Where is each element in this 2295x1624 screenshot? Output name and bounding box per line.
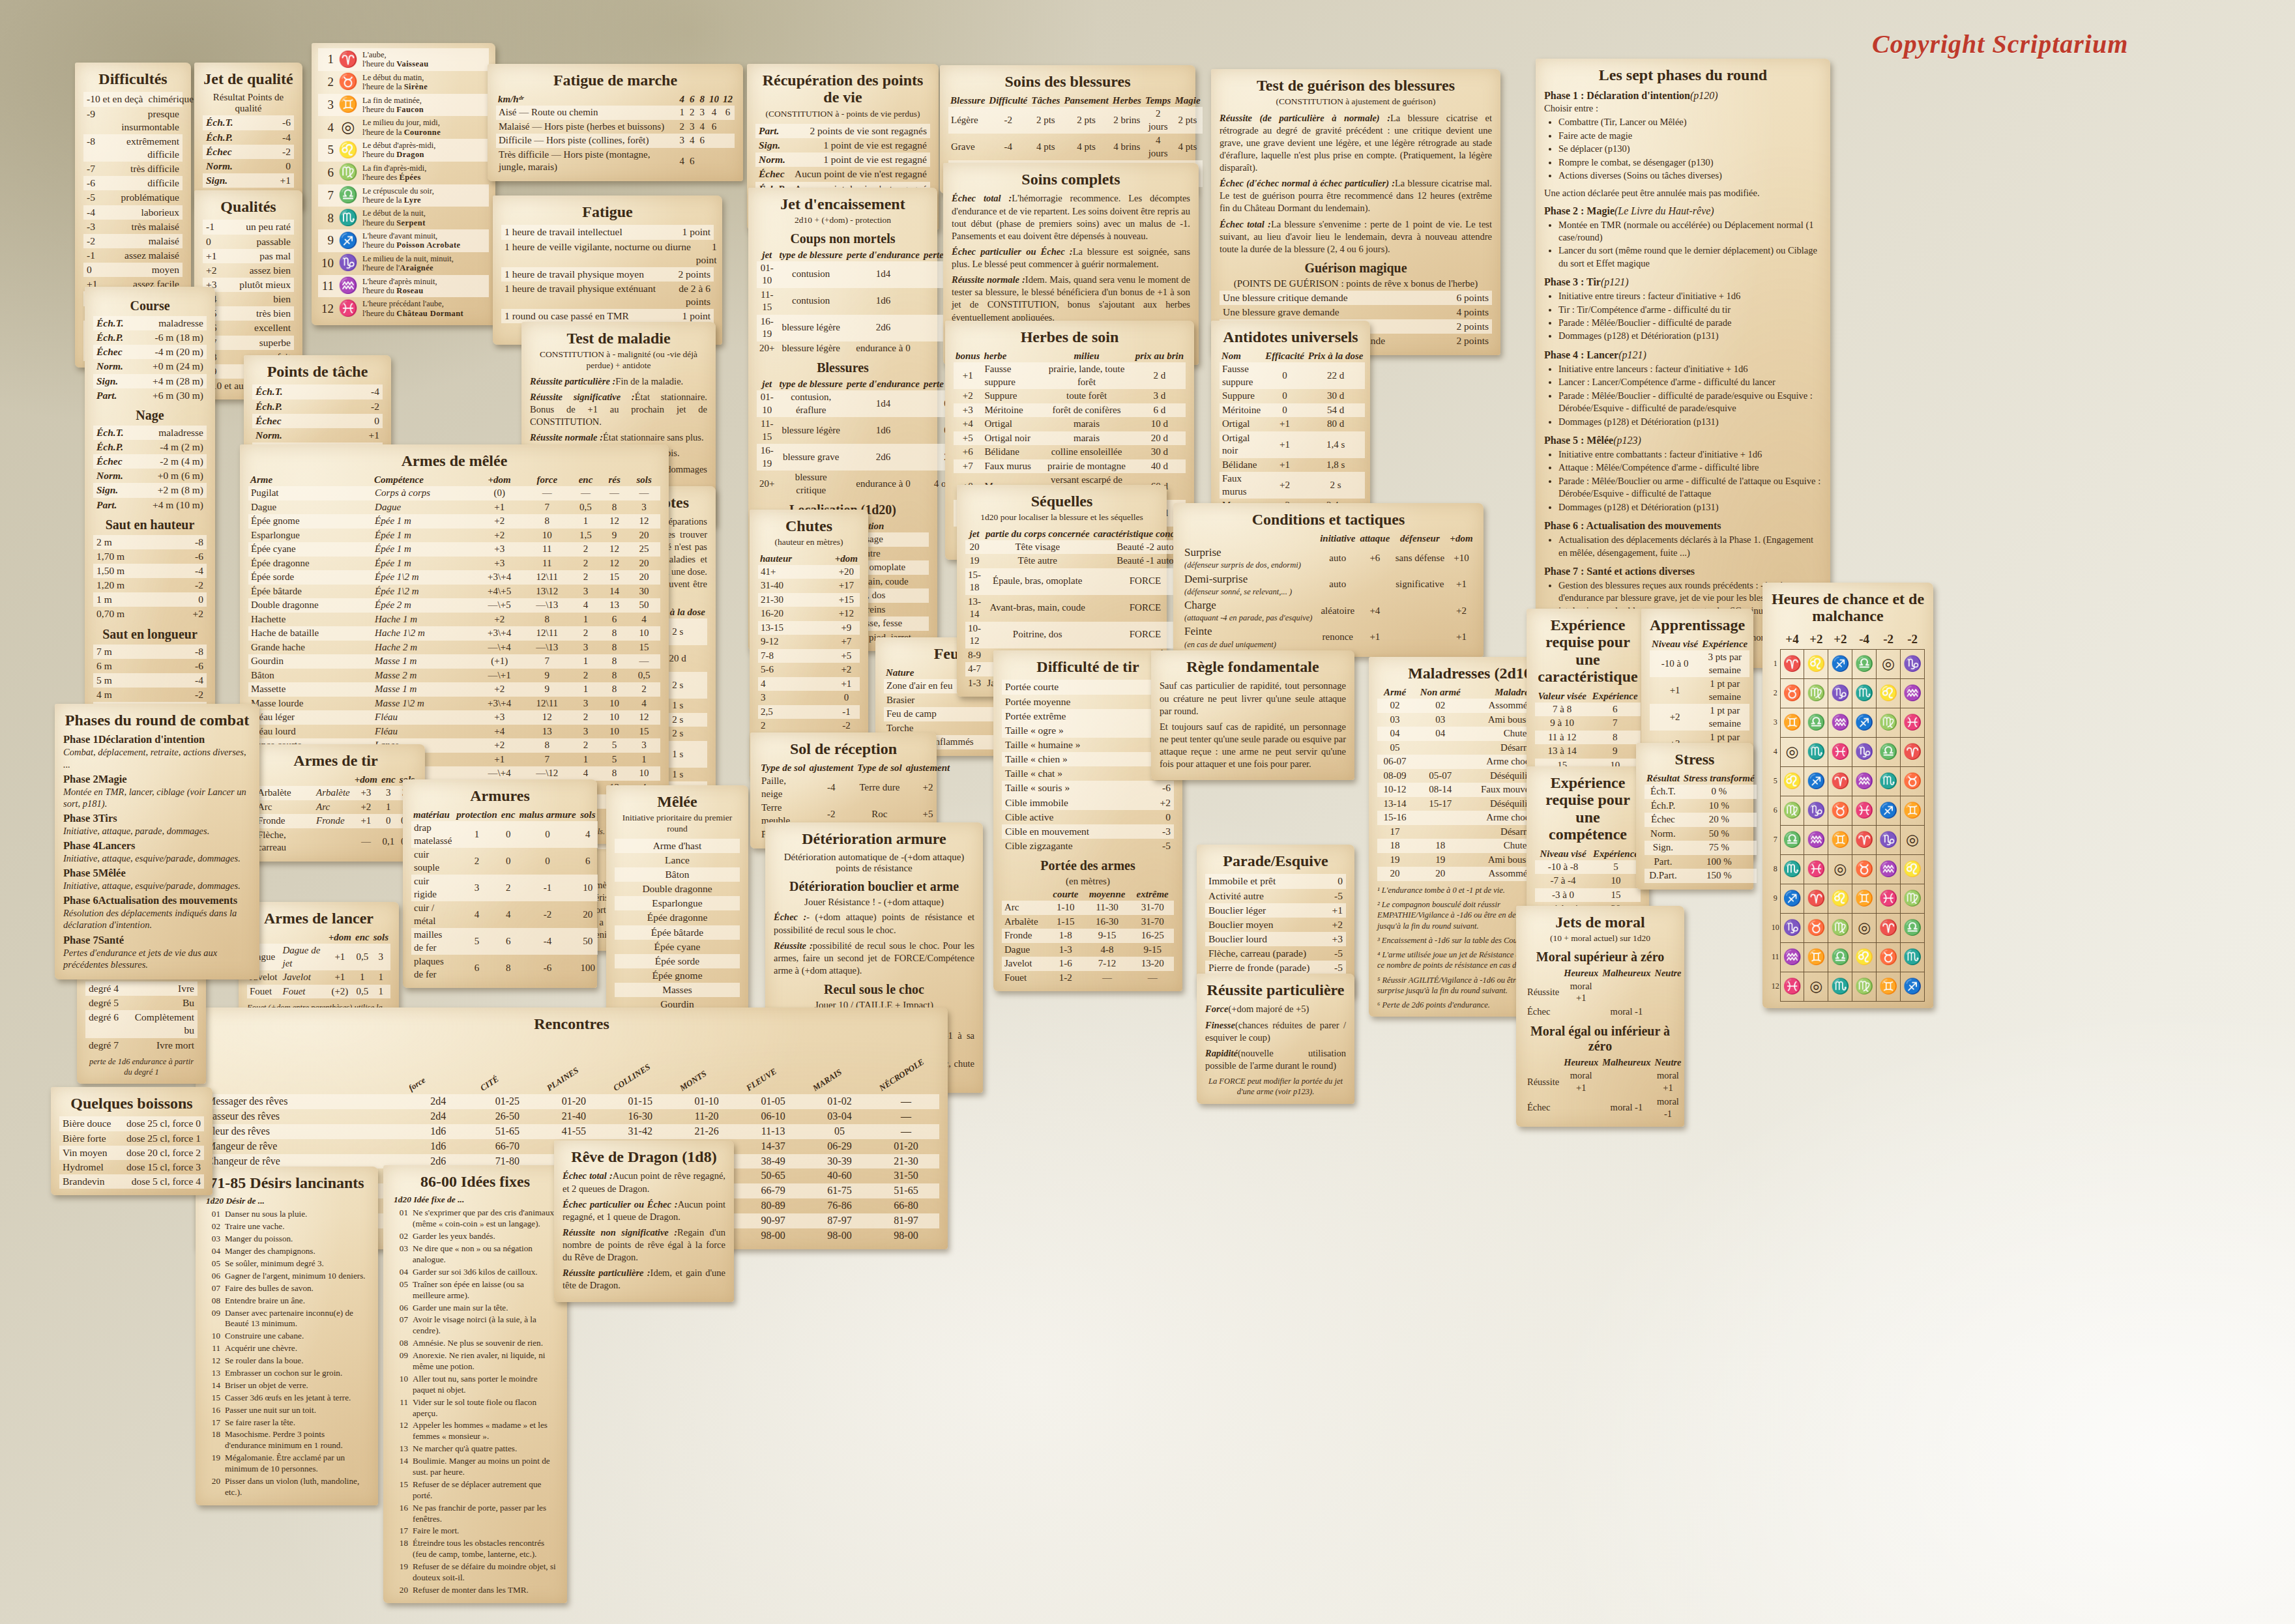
kv-label: 7 m	[96, 645, 112, 658]
table-cell: Épaule, bras, omoplate	[984, 568, 1092, 595]
table-row: 2,5-1	[758, 705, 860, 719]
bullet-item: Combattre (Tir, Lancer ou Mêlée)	[1558, 116, 1822, 128]
kv-value: dose 25 cl, force 0	[126, 1117, 201, 1130]
table-header-row: +domencsols	[255, 774, 417, 786]
hour-row: 1♈L'aube,l'heure du Vaisseau	[318, 48, 489, 71]
table-cell: Fronde	[314, 814, 353, 828]
list-item: Arme d'hast	[615, 839, 740, 853]
item-text: Pisser dans un violon (luth, mandoline, …	[225, 1476, 368, 1498]
item-number: 11	[394, 1397, 408, 1419]
kv-row: Bière fortedose 25 cl, force 1	[59, 1131, 204, 1146]
table-cell: 30 d	[1133, 445, 1186, 459]
section-heading: Moral égal ou inférieur à zéro	[1525, 1024, 1676, 1054]
table-row: 01-10contusion1d40	[757, 261, 971, 288]
kv-value: +4 m (10 m)	[153, 499, 203, 512]
hour-rune-couronne-icon: ◎	[1877, 649, 1901, 678]
table-cell: -7 à -4	[1535, 874, 1591, 888]
combat-phase: Phase 6Actualisation des mouvementsRésol…	[63, 894, 251, 931]
table-cell: 0	[1263, 362, 1306, 389]
kv-value: très malaisé	[131, 220, 179, 233]
table-cell: 10	[628, 766, 660, 781]
column-header: Niveau visé	[1650, 638, 1700, 650]
table-cell: 7	[524, 753, 571, 767]
kv-row: +2assez bien	[203, 263, 294, 278]
column-header: Efficacité	[1263, 350, 1306, 362]
table-cell: Hache de bataille	[248, 626, 372, 641]
item-text: Ne s'exprimer que par des cris d'animaux…	[413, 1208, 557, 1230]
center-line: Détérioration automatique de -(+dom atta…	[774, 852, 974, 874]
table-cell: 1	[677, 106, 688, 120]
table-cell: 08-09	[1377, 769, 1412, 783]
table-cell: 4-8	[1083, 943, 1132, 957]
hour-prefix: l'heure de l'	[362, 263, 400, 272]
kv-row: Sign.+2 m (8 m)	[93, 483, 207, 497]
panel-title: Armes de mêlée	[248, 452, 660, 469]
column-header: moyenne	[1083, 888, 1132, 901]
table-row: 9 à 107	[1535, 716, 1641, 731]
table-cell: Légère	[948, 107, 987, 134]
kv-label: 1 heure de travail intellectuel	[504, 225, 622, 239]
kv-value: -4	[371, 385, 379, 398]
table-row: 15-18Épaule, bras, omoplateFORCE	[965, 568, 1199, 595]
paragraph-lead: Échec particulier ou Échec :	[563, 1199, 678, 1210]
table-cell: Échec	[1525, 1005, 1562, 1019]
table-cell: 2	[628, 682, 660, 697]
panel-title: Expérience requise pour une caractéristi…	[1535, 616, 1641, 686]
list-item: 01Ne s'exprimer que par des cris d'anima…	[392, 1207, 559, 1230]
table-row: Grande hacheHache 2 m—\+4—\133815	[248, 641, 660, 655]
center-line: (POINTS DE GUÉRISON : points de rêve x b…	[1220, 278, 1492, 289]
table-row: 10-12Poitrine, dosFORCE	[965, 622, 1199, 648]
kv-row: Flèche, carreau (parade)-5	[1205, 946, 1346, 961]
table-cell: -4	[517, 928, 577, 955]
table-cell: 16-19	[757, 444, 777, 471]
column-header: perte d'endurance	[845, 378, 922, 390]
table-row: 13-15+9	[758, 621, 860, 635]
table-cell: 02	[1377, 699, 1412, 713]
kv-label: Échec	[206, 145, 232, 158]
column-header: ajustement	[904, 762, 952, 774]
hour-number: 9	[321, 233, 334, 248]
hour-number: 10	[321, 256, 334, 270]
panel-title: Rêve de Dragon (1d8)	[563, 1148, 725, 1165]
table-cell: Fléau	[372, 710, 475, 725]
rune-row: 2♉♍♑♏♌♒	[1771, 678, 1925, 708]
table-cell: blessure critique	[777, 471, 844, 497]
table-cell: —\+4	[475, 641, 524, 655]
table-cell: 2	[687, 106, 697, 120]
kv-row: Vin moyendose 20 cl, force 2	[59, 1146, 204, 1160]
table-cell: blessure légère	[777, 417, 844, 444]
panel-title: Soins des blessures	[948, 73, 1187, 90]
column-header: Arme	[248, 474, 372, 486]
table-cell: 4 jours	[1143, 134, 1173, 160]
kv-row: -8extrêmement difficile	[83, 134, 183, 162]
table-cell: 16-30	[1083, 915, 1132, 929]
panel-subtitle: (hauteur en mètres)	[758, 537, 860, 547]
table-cell: +1	[1263, 458, 1306, 472]
list-item: Lance	[615, 853, 740, 867]
table-cell: 3	[677, 134, 688, 148]
table-cell: (0)	[475, 486, 524, 500]
paragraph-lead: Réussite (de particulière à normale) :	[1220, 113, 1390, 123]
list-item: 06Garder une main sur la tête.	[392, 1302, 559, 1314]
table-cell: Difficile — Hors piste (collines, forêt)	[496, 134, 677, 148]
hour-prefix: l'heure de la	[362, 82, 404, 91]
panel-title: Phases du round de combat	[63, 712, 251, 729]
table-cell: 7	[524, 654, 571, 669]
item-number: 12	[206, 1356, 220, 1367]
bullet-item: Lancer du sort (même round que le dernie…	[1558, 244, 1822, 270]
table-cell: 0	[499, 821, 518, 848]
hour-rune-sirene-icon: ♉	[1804, 913, 1828, 942]
bullet-item: Rompre le combat, se désengager (p130)	[1558, 156, 1822, 169]
hour-rune-couronne-icon: ◎	[1901, 825, 1925, 854]
kv-label: Activité autre	[1208, 890, 1264, 903]
table-cell: Poitrine, dos	[984, 622, 1092, 648]
hour-rune-araignee-icon: ♑	[338, 254, 358, 272]
table-row: Double dragonneÉpée 2 m—\+5—\1341350	[248, 598, 660, 613]
table-row: ArcArc+2110	[255, 800, 417, 815]
table-cell: 9	[1589, 744, 1641, 759]
table-row: Charge(attaquant -4 en parade, pas d'esq…	[1182, 598, 1475, 624]
phase-pageref: (p120)	[1690, 90, 1718, 101]
column-header: Expérience	[1591, 848, 1641, 860]
bullet-item: Initiative entre tireurs : facteur d'ini…	[1558, 290, 1822, 302]
table-cell: 6	[697, 134, 708, 148]
phase-outro: Une action déclarée peut être annulée ma…	[1544, 188, 1822, 199]
kv-label: Éch.P.	[96, 441, 123, 454]
phase-number: Phase 6	[63, 894, 98, 906]
table-cell: Masse 1 m	[372, 654, 475, 669]
list-item: Épée sorde	[615, 954, 740, 968]
kv-value: superbe	[259, 336, 291, 349]
phase-title: Santé	[98, 934, 124, 946]
table-cell: 01-10	[673, 1094, 740, 1109]
table-cell: 01-10	[757, 390, 777, 417]
kv-row: Bière doucedose 25 cl, force 0	[59, 1116, 204, 1131]
hour-row: 4◎Le milieu du jour, midi,l'heure de la …	[318, 116, 489, 139]
data-table: +domencsolsArbalèteArbalète+3330ArcArc+2…	[255, 774, 417, 855]
table-cell: +7	[833, 635, 860, 649]
column-header: 8	[697, 93, 708, 106]
item-number: 15	[206, 1393, 220, 1404]
hour-desc: L'heure d'avant minuit,	[362, 231, 460, 240]
kv-label: Norm.	[96, 469, 123, 482]
item-number: 14	[394, 1456, 408, 1478]
phase-summary: Résolution des déplacements indiqués dan…	[63, 907, 251, 931]
kv-value: 1 point	[696, 240, 717, 267]
table-cell: 0,5	[353, 944, 372, 970]
kv-value: -2	[195, 579, 203, 592]
table-header-row: Type de solajustementType de solajusteme…	[759, 762, 952, 774]
column-header-terrain: CITÉ	[474, 1037, 540, 1094]
table-cell: 8	[524, 613, 571, 627]
phase-title: Déclaration d'intention	[98, 733, 205, 746]
paragraph-lead: Échec particulier ou Échec :	[952, 246, 1073, 257]
hour-name: Sirène	[404, 82, 428, 91]
list-item: 15Casser 3d6 œufs en les jetant à terre.	[204, 1392, 370, 1404]
table-cell	[1652, 979, 1683, 1006]
table-row: Messager des rêves2d401-2501-2001-1501-1…	[204, 1094, 939, 1109]
item-text: Se faire raser la tête.	[225, 1417, 295, 1428]
table-row: EsparlongueÉpée 1 m+2101,5920	[248, 529, 660, 543]
table-cell: mailles de fer	[411, 928, 454, 955]
table-cell: 8	[601, 766, 628, 781]
kv-value: 0	[1338, 875, 1343, 888]
rune-row-number: 2	[1771, 678, 1780, 708]
table-cell: 30	[628, 585, 660, 599]
table-cell: 20	[628, 529, 660, 543]
list-item: Épée cyane	[615, 940, 740, 954]
kv-row: +7superbe	[203, 336, 294, 350]
table-cell: 1-6	[1048, 957, 1083, 971]
phase-number: Phase 3	[63, 812, 98, 824]
item-text: Refuser de monter dans les TMR.	[413, 1585, 529, 1596]
panel-title: Test de guérison des blessures	[1220, 77, 1492, 94]
table-cell: 0 %	[1682, 785, 1757, 799]
item-number: 10	[394, 1374, 408, 1396]
table-cell: —	[873, 1094, 939, 1109]
paragraph: Finesse(chances réduites de parer / esqu…	[1205, 1019, 1346, 1044]
kv-row: 2 m-8	[93, 535, 207, 549]
kv-row: degré 4Ivre	[85, 981, 197, 996]
table-cell: 1-10	[1048, 901, 1083, 915]
hour-row: 11♒L'heure d'après minuit,l'heure du Ros…	[318, 275, 489, 298]
kv-label: Bière forte	[63, 1132, 106, 1145]
table-cell: 05	[1377, 741, 1412, 755]
rune-row: 5♌♐♈♒♏♉	[1771, 766, 1925, 796]
kv-value: très difficile	[130, 162, 179, 175]
table-cell: 1,5	[570, 529, 601, 543]
table-row: Épée sordeÉpée 1\2 m+3\+412\1121520	[248, 570, 660, 585]
table-cell: 2	[677, 120, 688, 134]
table-cell: 4	[677, 148, 688, 175]
paragraph-text: (+dom majoré de +5)	[1228, 1004, 1309, 1014]
table-cell: +2	[904, 774, 952, 801]
section-heading: Nage	[93, 408, 207, 423]
hour-row: 10♑Le milieu de la nuit, minuit,l'heure …	[318, 252, 489, 275]
table-row: Dague1-34-89-15	[1002, 943, 1174, 957]
list-item: 15Refuser de se déplacer autrement que p…	[392, 1479, 559, 1502]
paragraph: Réussite :possibilité de recul sous le c…	[774, 940, 974, 977]
modifier-header: +2	[1828, 630, 1852, 650]
kv-row: Norm.0	[203, 159, 294, 173]
table-cell: 50-65	[740, 1168, 806, 1183]
table-cell: -6	[517, 955, 577, 981]
table-cell: 6	[707, 120, 721, 134]
hour-rune-roseau-icon: ♒	[1901, 678, 1925, 708]
hour-desc: L'heure précédant l'aube,	[362, 299, 463, 308]
table-cell: +2	[475, 613, 524, 627]
table-row: 11 à 128	[1535, 731, 1641, 745]
table-row: FouetFouet(+2)0,51	[247, 985, 390, 999]
kv-value: dose 20 cl, force 2	[126, 1146, 201, 1159]
panel-title: Quelques boissons	[59, 1095, 204, 1112]
table-row: Arc1-1011-3031-70	[1002, 901, 1174, 915]
bullet-item: Parade : Mêlée/Bouclier - difficulté de …	[1558, 390, 1822, 415]
item-text: Traîner son épée en laisse (ou sa meille…	[413, 1279, 557, 1301]
table-cell: 6	[454, 955, 499, 981]
kv-row: Cible immobile+2	[1002, 796, 1174, 810]
table-row: Paille, neige-4Terre dure+2	[759, 774, 952, 801]
list-item: Épée bâtarde	[615, 925, 740, 940]
table-cell: moral -1	[1600, 1005, 1652, 1019]
table-cell: 2 pts	[1029, 107, 1062, 134]
kv-value: plutôt mieux	[239, 278, 291, 291]
table-cell: 11	[524, 542, 571, 557]
hour-desc: La fin de matinée,	[362, 96, 424, 105]
paragraph: Sauf cas particulier de rapidité, tout p…	[1160, 680, 1346, 717]
list-item-label: Arme d'hast	[653, 839, 702, 852]
table-cell: —	[1131, 971, 1174, 985]
table-cell: 8	[601, 641, 628, 655]
table-cell: 4	[570, 766, 601, 781]
kv-row: +3plutôt mieux	[203, 278, 294, 292]
list-item: Esparlongue	[615, 896, 740, 910]
table-cell: +4	[954, 417, 982, 431]
hour-prefix: l'heure de la	[362, 128, 404, 137]
table-row: Hache de batailleHache 1\2 m+3\+412\1128…	[248, 626, 660, 641]
table-cell: Avant-bras, main, coude	[984, 595, 1092, 622]
column-header: Type de sol	[759, 762, 808, 774]
kv-row: -2malaisé	[83, 234, 183, 248]
kv-row: Échec0	[252, 414, 383, 428]
kv-label: 1 round ou case passé en TMR	[504, 310, 629, 323]
panel-title: Test de maladie	[530, 330, 707, 347]
column-header: Résultat	[1645, 772, 1682, 785]
kv-row: Cible en mouvement-3	[1002, 824, 1174, 839]
hour-prefix: l'heure de la	[362, 196, 404, 205]
table-cell: 1 pt par semaine	[1700, 677, 1749, 704]
table-row: Fausse suppure022 d	[1220, 362, 1365, 389]
table-row: BâtonMasse 2 m—\+19280,5	[248, 669, 660, 683]
table-cell: 5	[1591, 860, 1641, 875]
table-cell: 40 d	[1133, 459, 1186, 474]
bullet-item: Actions diverses (Soins ou tâches divers…	[1558, 169, 1822, 182]
kv-label: Hydromel	[63, 1161, 104, 1174]
table-cell: Sign.	[1645, 841, 1682, 855]
kv-label: degré 7	[89, 1039, 119, 1052]
item-number: 06	[394, 1303, 408, 1314]
table-row: Arbalète1-1516-3031-70	[1002, 915, 1174, 929]
kv-label: Éch.P.	[206, 131, 233, 144]
table-cell: 10	[628, 626, 660, 641]
panel-title: Sol de réception	[759, 740, 928, 757]
column-header: enc	[379, 774, 398, 786]
panel-title: Jets de moral	[1525, 914, 1676, 931]
table-row: Fronde1-89-1516-25	[1002, 929, 1174, 943]
table-cell: 01-15	[607, 1094, 673, 1109]
panel-subtitle: 2d10 + (+dom) - protection	[757, 215, 929, 225]
table-cell: +12	[833, 607, 860, 621]
table-cell: 98-00	[806, 1228, 873, 1243]
table-cell: 15	[628, 725, 660, 739]
column-header	[1525, 1056, 1562, 1069]
table-cell: cuir rigide	[411, 875, 454, 901]
kv-row: Éch.T.maladresse	[93, 316, 207, 330]
table-cell: 20+	[757, 341, 777, 356]
table-cell: blessure grave	[777, 444, 844, 471]
panel-title: Points de tâche	[252, 363, 383, 380]
kv-row: Échec-4 m (20 m)	[93, 345, 207, 359]
table-row: -10 à -85	[1535, 860, 1641, 875]
column-header: malus armure	[517, 809, 577, 821]
column-header: Heureux	[1562, 967, 1600, 979]
hour-name-line: l'heure du Faucon	[362, 105, 424, 114]
table-cell: —\+1	[475, 669, 524, 683]
table-cell: 1	[379, 800, 398, 815]
hour-rune-roseau-icon: ♒	[1877, 854, 1901, 884]
kv-row: Norm.1 point de vie est regagné	[755, 152, 930, 167]
hour-row: 8♏Le début de la nuit,l'heure du Serpent	[318, 207, 489, 229]
column-header: Heureux	[1562, 1056, 1600, 1069]
table-cell: endurance à 0	[845, 471, 922, 497]
item-text: Anorexie. Ne rien avaler, ni liquide, ni…	[413, 1350, 557, 1372]
kv-row: -7très difficile	[83, 162, 183, 176]
table-cell: 0	[833, 691, 860, 705]
panel-title: Parade/Esquive	[1205, 852, 1346, 869]
column-header: prix au brin	[1133, 350, 1186, 362]
table-cell: Épée cyane	[248, 542, 372, 557]
panel-armes-de-tir: Armes de tir+domencsolsArbalèteArbalète+…	[246, 744, 425, 862]
table-cell: Pugilat	[248, 486, 372, 500]
kv-value: -4 m (20 m)	[155, 345, 203, 358]
item-text: Refuser de se défaire du moindre objet, …	[413, 1561, 557, 1584]
table-cell: 6	[601, 613, 628, 627]
table-cell: 1	[628, 753, 660, 767]
column-header: force	[524, 474, 571, 486]
kv-label: Bière douce	[63, 1117, 111, 1130]
hour-rune-couronne-icon: ◎	[1852, 913, 1877, 942]
section-heading: Coups non mortels	[757, 231, 929, 246]
hour-row: 12♓L'heure précédant l'aube,l'heure du C…	[318, 297, 489, 320]
kv-label: Portée courte	[1005, 680, 1059, 693]
table-cell: 38-49	[740, 1154, 806, 1169]
table-cell: 01-10	[757, 261, 777, 288]
item-number: 10	[206, 1331, 220, 1342]
hour-rune-epees-icon: ♍	[1780, 796, 1804, 825]
list-item-label: Épée cyane	[654, 940, 701, 953]
table-cell: Épée bâtarde	[248, 585, 372, 599]
table-cell: Feu de camp	[884, 707, 987, 721]
table-cell: 20	[628, 570, 660, 585]
kv-row: Part.2 points de vie sont regagnés	[755, 124, 930, 138]
item-text: Aller tout nu, sans porter le moindre pa…	[413, 1374, 557, 1396]
hour-rune-faucon-icon: ♊	[1804, 942, 1828, 972]
table-cell: 2 s	[1306, 472, 1366, 499]
list-item-label: Masses	[662, 983, 692, 996]
kv-label: 5 m	[96, 674, 112, 687]
kv-row: -5problématique	[83, 190, 183, 205]
kv-row: Hydromeldose 15 cl, force 3	[59, 1160, 204, 1174]
kv-label: -9	[87, 108, 95, 134]
kv-label: Éch.T.	[96, 317, 124, 330]
table-cell: 9 à 10	[1535, 716, 1589, 731]
item-text: Faire des bulles de savon.	[225, 1283, 314, 1294]
paragraph: Et toujours sauf cas de rapidité, un per…	[1160, 721, 1346, 771]
table-cell: 100 %	[1682, 855, 1757, 869]
kv-value: 2 points	[678, 268, 710, 281]
table-cell: Faux murus	[1220, 472, 1263, 499]
table-row: Sign.75 %	[1645, 841, 1757, 855]
table-row: Grave-44 pts4 pts4 brins4 jours4 pts	[948, 134, 1203, 160]
table-cell: auto	[1318, 572, 1358, 598]
table-row: Épée dragonneÉpée 1 m+31121220	[248, 557, 660, 571]
paragraph-lead: Échec (d'échec normal à échec particulie…	[1220, 178, 1395, 188]
condition-detail: (défenseur surpris de dos, endormi)	[1184, 560, 1315, 570]
hour-rune-dragon-icon: ♌	[1877, 678, 1901, 708]
